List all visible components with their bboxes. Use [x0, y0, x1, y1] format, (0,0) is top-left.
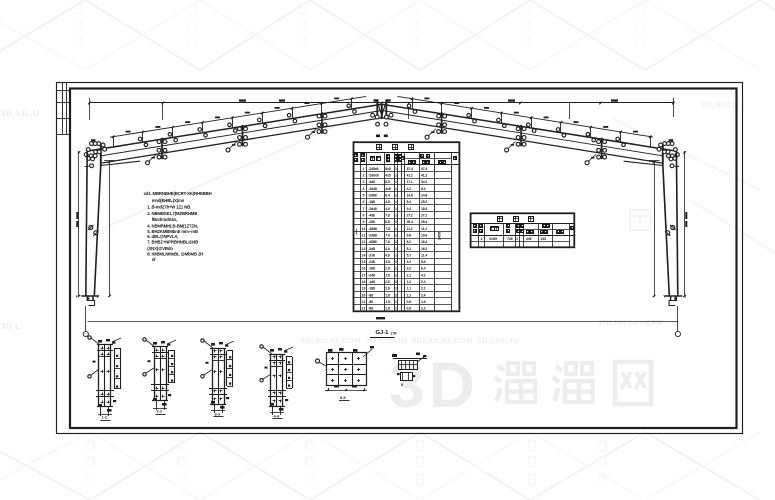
svg-text:1: 1 — [395, 207, 397, 211]
svg-text:2.8: 2.8 — [385, 273, 390, 277]
svg-text:16.2: 16.2 — [421, 247, 427, 251]
svg-text:27.2: 27.2 — [407, 214, 413, 218]
svg-text:11.4: 11.4 — [421, 253, 427, 257]
svg-text:1: 1 — [395, 253, 397, 257]
svg-text:3D LIL-U: 3D LIL-U — [1, 109, 40, 118]
svg-text:-188: -188 — [368, 200, 375, 204]
svg-text:27.2: 27.2 — [421, 214, 427, 218]
svg-text:8x8: 8x8 — [385, 167, 391, 171]
svg-text:0.8: 0.8 — [407, 300, 412, 304]
svg-text:(: ( — [356, 229, 358, 235]
svg-text:1.8: 1.8 — [385, 300, 390, 304]
svg-text:16.4: 16.4 — [421, 240, 427, 244]
svg-text:1: 1 — [395, 307, 397, 311]
svg-text:6.4: 6.4 — [421, 267, 426, 271]
svg-text:1. B-mdZ78+W 1Z1 NB.: 1. B-mdZ78+W 1Z1 NB. — [147, 205, 191, 210]
svg-text:19.6: 19.6 — [421, 234, 427, 238]
svg-text:17.1: 17.1 — [407, 180, 413, 184]
svg-text:12: 12 — [362, 240, 366, 244]
svg-text:18: 18 — [362, 280, 366, 284]
svg-text:1-1: 1-1 — [102, 416, 108, 420]
svg-text:8.4: 8.4 — [407, 200, 412, 204]
svg-text:21: 21 — [362, 300, 366, 304]
svg-text:6. dBL@NPVLA,: 6. dBL@NPVLA, — [147, 234, 178, 239]
svg-text:3D L: 3D L — [1, 322, 20, 331]
svg-text:1.8: 1.8 — [385, 307, 390, 311]
svg-text:-d48: -d48 — [368, 273, 375, 277]
svg-text:-1d8: -1d8 — [368, 280, 375, 284]
svg-text:8.8: 8.8 — [385, 180, 390, 184]
svg-text:5. BHZKMBMbnE mm--mB: 5. BHZKMBMbnE mm--mB — [147, 229, 198, 234]
svg-text:-188: -188 — [368, 287, 375, 291]
svg-text:8.4: 8.4 — [421, 187, 426, 191]
svg-text:4.8: 4.8 — [385, 253, 390, 257]
svg-text:15: 15 — [362, 260, 366, 264]
svg-text:1: 1 — [481, 237, 483, 241]
svg-text:-2d48: -2d48 — [368, 207, 377, 211]
svg-text:11.2: 11.2 — [407, 227, 413, 231]
svg-text:13: 13 — [362, 247, 366, 251]
svg-text:1: 1 — [395, 200, 397, 204]
svg-text:1: 1 — [516, 237, 518, 241]
svg-text:4.2: 4.2 — [421, 273, 426, 277]
svg-text:16: 16 — [362, 267, 366, 271]
svg-text:4x8: 4x8 — [385, 187, 391, 191]
svg-text:2.4: 2.4 — [421, 293, 426, 297]
svg-text:2: 2 — [395, 260, 397, 264]
svg-text:2458: 2458 — [438, 232, 442, 240]
svg-text:2: 2 — [363, 174, 365, 178]
svg-text:2.8: 2.8 — [385, 280, 390, 284]
svg-text:245: 245 — [526, 237, 532, 241]
svg-text:1: 1 — [395, 194, 397, 198]
svg-text:5.7: 5.7 — [407, 253, 412, 257]
svg-text:8: 8 — [363, 214, 365, 218]
svg-text:2. NBMBXE1.7(MZBRHMB: 2. NBMBXE1.7(MZBRHMB — [147, 211, 197, 216]
svg-text:1: 1 — [395, 300, 397, 304]
svg-text:-188: -188 — [368, 267, 375, 271]
svg-text:14.8: 14.8 — [421, 194, 427, 198]
svg-text:1: 1 — [395, 267, 397, 271]
svg-text:3DLIULIU · C0M: 3DLIULIU · C0M — [598, 318, 663, 327]
svg-text:3DLIULIU.COM 3D LIULIU 3DLIULI: 3DLIULIU.COM 3D LIULIU 3DLIULIU.COM 3D L… — [300, 336, 519, 345]
svg-text:7. BHBZ+NPRBHNBL@NB: 7. BHBZ+NPRBHNBL@NB — [147, 240, 198, 245]
svg-text:1: 1 — [395, 247, 397, 251]
svg-text:4.8: 4.8 — [385, 200, 390, 204]
svg-text:8.2: 8.2 — [407, 240, 412, 244]
svg-text:1: 1 — [395, 287, 397, 291]
svg-text:-488: -488 — [368, 214, 375, 218]
svg-text:2: 2 — [395, 220, 397, 224]
svg-text:-248x8: -248x8 — [368, 167, 378, 171]
svg-text:8.4: 8.4 — [385, 194, 390, 198]
svg-text:(XNX(@VBdn: (XNX(@VBdn — [147, 246, 173, 251]
svg-text:4.8: 4.8 — [385, 247, 390, 251]
svg-text:745: 745 — [507, 237, 513, 241]
svg-text:-4d88: -4d88 — [368, 227, 377, 231]
svg-text:1.1: 1.1 — [407, 287, 412, 291]
svg-text:28.4: 28.4 — [421, 220, 427, 224]
svg-text:-88: -88 — [368, 293, 373, 297]
svg-text:245: 245 — [541, 237, 547, 241]
svg-text:1: 1 — [395, 214, 397, 218]
svg-text:1: 1 — [395, 167, 397, 171]
svg-text:7.8: 7.8 — [385, 240, 390, 244]
svg-text:1: 1 — [395, 180, 397, 184]
svg-text:9: 9 — [363, 220, 365, 224]
svg-text:8.1: 8.1 — [407, 247, 412, 251]
svg-text:41.2: 41.2 — [407, 174, 413, 178]
svg-text:6: 6 — [363, 200, 365, 204]
svg-text:4-4: 4-4 — [274, 415, 280, 419]
svg-text:7.8: 7.8 — [385, 227, 390, 231]
svg-text:1.2: 1.2 — [407, 293, 412, 297]
svg-text:11.2: 11.2 — [421, 227, 427, 231]
svg-text:2.4: 2.4 — [421, 280, 426, 284]
svg-text:2: 2 — [395, 293, 397, 297]
svg-text:25.2: 25.2 — [421, 200, 427, 204]
svg-text:2.1: 2.1 — [407, 273, 412, 277]
svg-text:1: 1 — [395, 234, 397, 238]
svg-text:14.8: 14.8 — [407, 194, 413, 198]
svg-text:xd1. MBRNBHE(BCRT-XK)RHEBBH: xd1. MBRNBHE(BCRT-XK)RHEBBH — [144, 191, 212, 196]
svg-text:-288: -288 — [368, 220, 375, 224]
svg-text:0.6: 0.6 — [407, 307, 412, 311]
svg-text:4.2: 4.2 — [407, 187, 412, 191]
svg-text:1: 1 — [395, 227, 397, 231]
svg-text:-2688: -2688 — [368, 194, 376, 198]
svg-text:18.4: 18.4 — [421, 207, 427, 211]
svg-text:20: 20 — [362, 293, 366, 297]
svg-text:fBndrmdX4n,: fBndrmdX4n, — [152, 217, 177, 222]
svg-text:47.4: 47.4 — [421, 167, 427, 171]
svg-text:-88: -88 — [368, 307, 373, 311]
svg-text:mnd(EHBL)X(mn: mnd(EHBL)X(mn — [152, 198, 185, 203]
svg-text:-2d48: -2d48 — [368, 187, 377, 191]
svg-text:41.2: 41.2 — [421, 174, 427, 178]
svg-text:1: 1 — [395, 273, 397, 277]
svg-text:-2x8: -2x8 — [368, 253, 375, 257]
svg-text:8.8: 8.8 — [385, 220, 390, 224]
svg-text:4.4: 4.4 — [407, 260, 412, 264]
svg-text:-88: -88 — [368, 300, 373, 304]
svg-text:19: 19 — [362, 287, 366, 291]
svg-text:2: 2 — [395, 280, 397, 284]
svg-text:4.8: 4.8 — [385, 260, 390, 264]
svg-text:10: 10 — [362, 227, 366, 231]
svg-text:1.2: 1.2 — [407, 280, 412, 284]
svg-text:3: 3 — [363, 180, 365, 184]
svg-text:GJ25: GJ25 — [489, 237, 497, 241]
svg-text:2-2: 2-2 — [157, 410, 163, 414]
svg-text:GJ-1: GJ-1 — [376, 330, 390, 336]
svg-text:7.8: 7.8 — [385, 214, 390, 218]
svg-text:2.8: 2.8 — [385, 287, 390, 291]
svg-text:3DLIU.CO: 3DLIU.CO — [700, 100, 739, 109]
svg-text:8. rMBMLNMnBL @MbMB 2H: 8. rMBMLNMnBL @MbMB 2H — [147, 252, 203, 257]
svg-text:4x5: 4x5 — [385, 174, 391, 178]
svg-text:6: 6 — [401, 383, 403, 387]
svg-text:11: 11 — [362, 234, 366, 238]
svg-text:28.4: 28.4 — [407, 220, 413, 224]
svg-text:4.8: 4.8 — [385, 207, 390, 211]
svg-text:5: 5 — [363, 194, 365, 198]
svg-text:1: 1 — [363, 167, 365, 171]
svg-text:22: 22 — [362, 307, 366, 311]
svg-text:9.8: 9.8 — [407, 234, 412, 238]
svg-text:1: 1 — [395, 174, 397, 178]
svg-text:1.8: 1.8 — [385, 293, 390, 297]
svg-text:1.6: 1.6 — [421, 300, 426, 304]
svg-text:2.2: 2.2 — [421, 287, 426, 291]
svg-text:17: 17 — [362, 273, 366, 277]
svg-text:5-5: 5-5 — [340, 396, 346, 400]
svg-text:1.2: 1.2 — [421, 307, 426, 311]
svg-text:-2d88: -2d88 — [368, 234, 377, 238]
svg-text:3.2: 3.2 — [407, 267, 412, 271]
svg-text:1:50: 1:50 — [390, 331, 397, 335]
svg-text:9.2: 9.2 — [407, 207, 412, 211]
svg-text:8.8: 8.8 — [421, 260, 426, 264]
svg-text:7.8: 7.8 — [385, 234, 390, 238]
svg-text:4. NBMRMH(.B-BM(1Z7ZN,: 4. NBMRMH(.B-BM(1Z7ZN, — [147, 223, 198, 228]
svg-text:4: 4 — [363, 187, 365, 191]
svg-text:-2d0x8: -2d0x8 — [368, 174, 378, 178]
svg-text:47.4: 47.4 — [407, 167, 413, 171]
svg-text:-2d8: -2d8 — [368, 247, 375, 251]
svg-text:34.2: 34.2 — [421, 180, 427, 184]
svg-text:2: 2 — [395, 240, 397, 244]
svg-text:3-3: 3-3 — [215, 413, 221, 417]
svg-text:-4888: -4888 — [368, 240, 376, 244]
svg-text:14: 14 — [362, 253, 366, 257]
svg-text:2.8: 2.8 — [385, 267, 390, 271]
svg-text:1: 1 — [395, 187, 397, 191]
svg-text:-4d8: -4d8 — [368, 180, 375, 184]
svg-text:-248: -248 — [368, 260, 375, 264]
svg-text:7: 7 — [363, 207, 365, 211]
